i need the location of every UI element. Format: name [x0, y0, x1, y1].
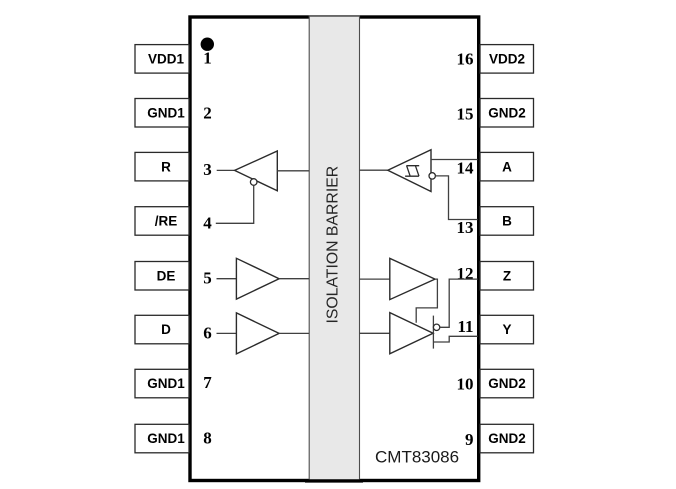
- svg-text:CMT83086: CMT83086: [375, 447, 459, 466]
- svg-text:A: A: [502, 159, 512, 174]
- svg-text:4: 4: [203, 214, 212, 233]
- svg-text:GND1: GND1: [147, 105, 185, 120]
- svg-text:GND2: GND2: [488, 431, 526, 446]
- svg-text:VDD2: VDD2: [489, 52, 525, 67]
- svg-text:7: 7: [203, 373, 212, 392]
- svg-text:GND1: GND1: [147, 376, 185, 391]
- svg-text:GND2: GND2: [488, 105, 526, 120]
- svg-text:B: B: [502, 214, 512, 229]
- svg-text:D: D: [161, 322, 171, 337]
- svg-text:Z: Z: [503, 268, 511, 283]
- svg-text:GND2: GND2: [488, 376, 526, 391]
- svg-text:2: 2: [203, 104, 212, 123]
- svg-text:/RE: /RE: [155, 214, 178, 229]
- svg-text:ISOLATION BARRIER: ISOLATION BARRIER: [325, 166, 342, 324]
- svg-text:9: 9: [465, 430, 474, 449]
- svg-text:10: 10: [457, 375, 474, 394]
- svg-text:Y: Y: [502, 322, 511, 337]
- svg-text:12: 12: [457, 264, 474, 283]
- svg-text:16: 16: [457, 50, 474, 69]
- svg-text:14: 14: [457, 158, 475, 177]
- svg-text:5: 5: [203, 269, 212, 288]
- svg-text:8: 8: [203, 429, 212, 448]
- svg-text:11: 11: [457, 317, 473, 336]
- svg-text:VDD1: VDD1: [148, 52, 185, 67]
- svg-text:GND1: GND1: [147, 431, 185, 446]
- svg-text:1: 1: [203, 49, 212, 68]
- svg-text:R: R: [161, 159, 171, 174]
- svg-text:6: 6: [203, 324, 212, 343]
- svg-text:DE: DE: [157, 268, 176, 283]
- svg-text:13: 13: [457, 218, 474, 237]
- svg-text:3: 3: [203, 160, 212, 179]
- svg-text:15: 15: [457, 105, 474, 124]
